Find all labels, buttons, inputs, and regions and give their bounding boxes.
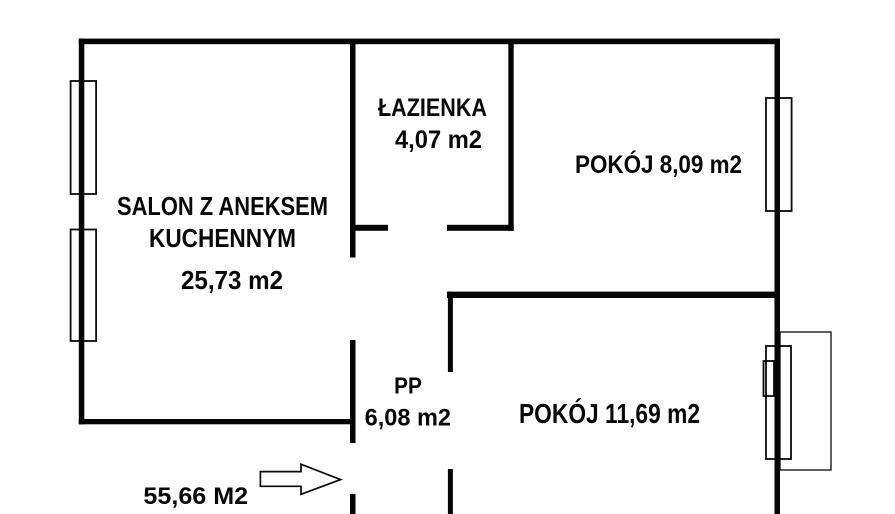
svg-text:ŁAZIENKA: ŁAZIENKA: [378, 94, 487, 122]
svg-text:SALON Z ANEKSEM: SALON Z ANEKSEM: [117, 191, 328, 221]
svg-text:55,66 M2: 55,66 M2: [143, 483, 248, 510]
svg-text:POKÓJ 11,69 m2: POKÓJ 11,69 m2: [519, 398, 700, 429]
svg-text:POKÓJ 8,09 m2: POKÓJ 8,09 m2: [575, 149, 742, 179]
svg-text:4,07 m2: 4,07 m2: [395, 126, 482, 154]
svg-text:25,73 m2: 25,73 m2: [181, 265, 283, 295]
svg-text:6,08 m2: 6,08 m2: [365, 405, 451, 432]
svg-text:PP: PP: [394, 373, 422, 399]
svg-text:KUCHENNYM: KUCHENNYM: [149, 223, 296, 253]
